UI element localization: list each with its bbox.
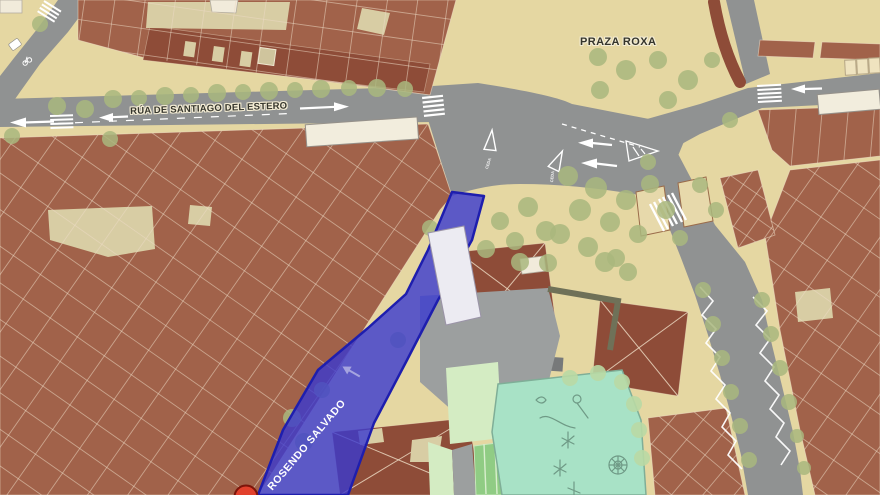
tree bbox=[131, 90, 147, 106]
tree bbox=[585, 177, 607, 199]
tree bbox=[32, 16, 48, 32]
tree bbox=[763, 326, 779, 342]
tree bbox=[692, 177, 708, 193]
tree bbox=[511, 253, 529, 271]
tree bbox=[48, 97, 66, 115]
tree bbox=[102, 131, 118, 147]
tree bbox=[797, 461, 811, 475]
tree bbox=[368, 79, 386, 97]
tree bbox=[506, 232, 524, 250]
tree bbox=[657, 201, 675, 219]
tree bbox=[714, 350, 730, 366]
tree bbox=[518, 197, 538, 217]
tree bbox=[341, 80, 357, 96]
tree bbox=[76, 100, 94, 118]
map-canvas[interactable] bbox=[0, 0, 880, 495]
tree bbox=[790, 429, 804, 443]
tree bbox=[260, 82, 278, 100]
tree bbox=[722, 112, 738, 128]
tree bbox=[704, 52, 720, 68]
tree bbox=[732, 418, 748, 434]
tree bbox=[539, 254, 557, 272]
tree bbox=[741, 452, 757, 468]
tree bbox=[705, 316, 721, 332]
tree bbox=[641, 175, 659, 193]
tree bbox=[629, 225, 647, 243]
tree bbox=[781, 394, 797, 410]
tree bbox=[558, 166, 578, 186]
tree bbox=[589, 48, 607, 66]
tree bbox=[754, 292, 770, 308]
parking-spaces bbox=[845, 58, 880, 76]
tree bbox=[695, 282, 711, 298]
tree bbox=[600, 212, 620, 232]
playground bbox=[492, 365, 650, 495]
tree bbox=[578, 237, 598, 257]
tree bbox=[659, 91, 677, 109]
tree bbox=[708, 202, 724, 218]
tree bbox=[397, 81, 413, 97]
tree bbox=[619, 263, 637, 281]
tree bbox=[312, 80, 330, 98]
tree bbox=[772, 360, 788, 376]
tree bbox=[672, 230, 688, 246]
tree bbox=[595, 252, 615, 272]
tree bbox=[591, 81, 609, 99]
tree bbox=[491, 212, 509, 230]
tree bbox=[183, 87, 199, 103]
tree bbox=[616, 60, 636, 80]
tree bbox=[569, 199, 591, 221]
tree bbox=[4, 128, 20, 144]
tree bbox=[640, 154, 656, 170]
tree bbox=[104, 90, 122, 108]
tree bbox=[477, 240, 495, 258]
tree bbox=[235, 84, 251, 100]
map-viewport[interactable]: PRAZA ROXA RÚA DE SANTIAGO DEL ESTERO RO… bbox=[0, 0, 880, 495]
tree bbox=[649, 51, 667, 69]
building-top-left-corner bbox=[0, 0, 22, 13]
tree bbox=[287, 82, 303, 98]
tree bbox=[536, 221, 556, 241]
tree bbox=[616, 190, 636, 210]
tree bbox=[723, 384, 739, 400]
tree bbox=[156, 87, 174, 105]
tree bbox=[678, 70, 698, 90]
tree bbox=[208, 84, 226, 102]
